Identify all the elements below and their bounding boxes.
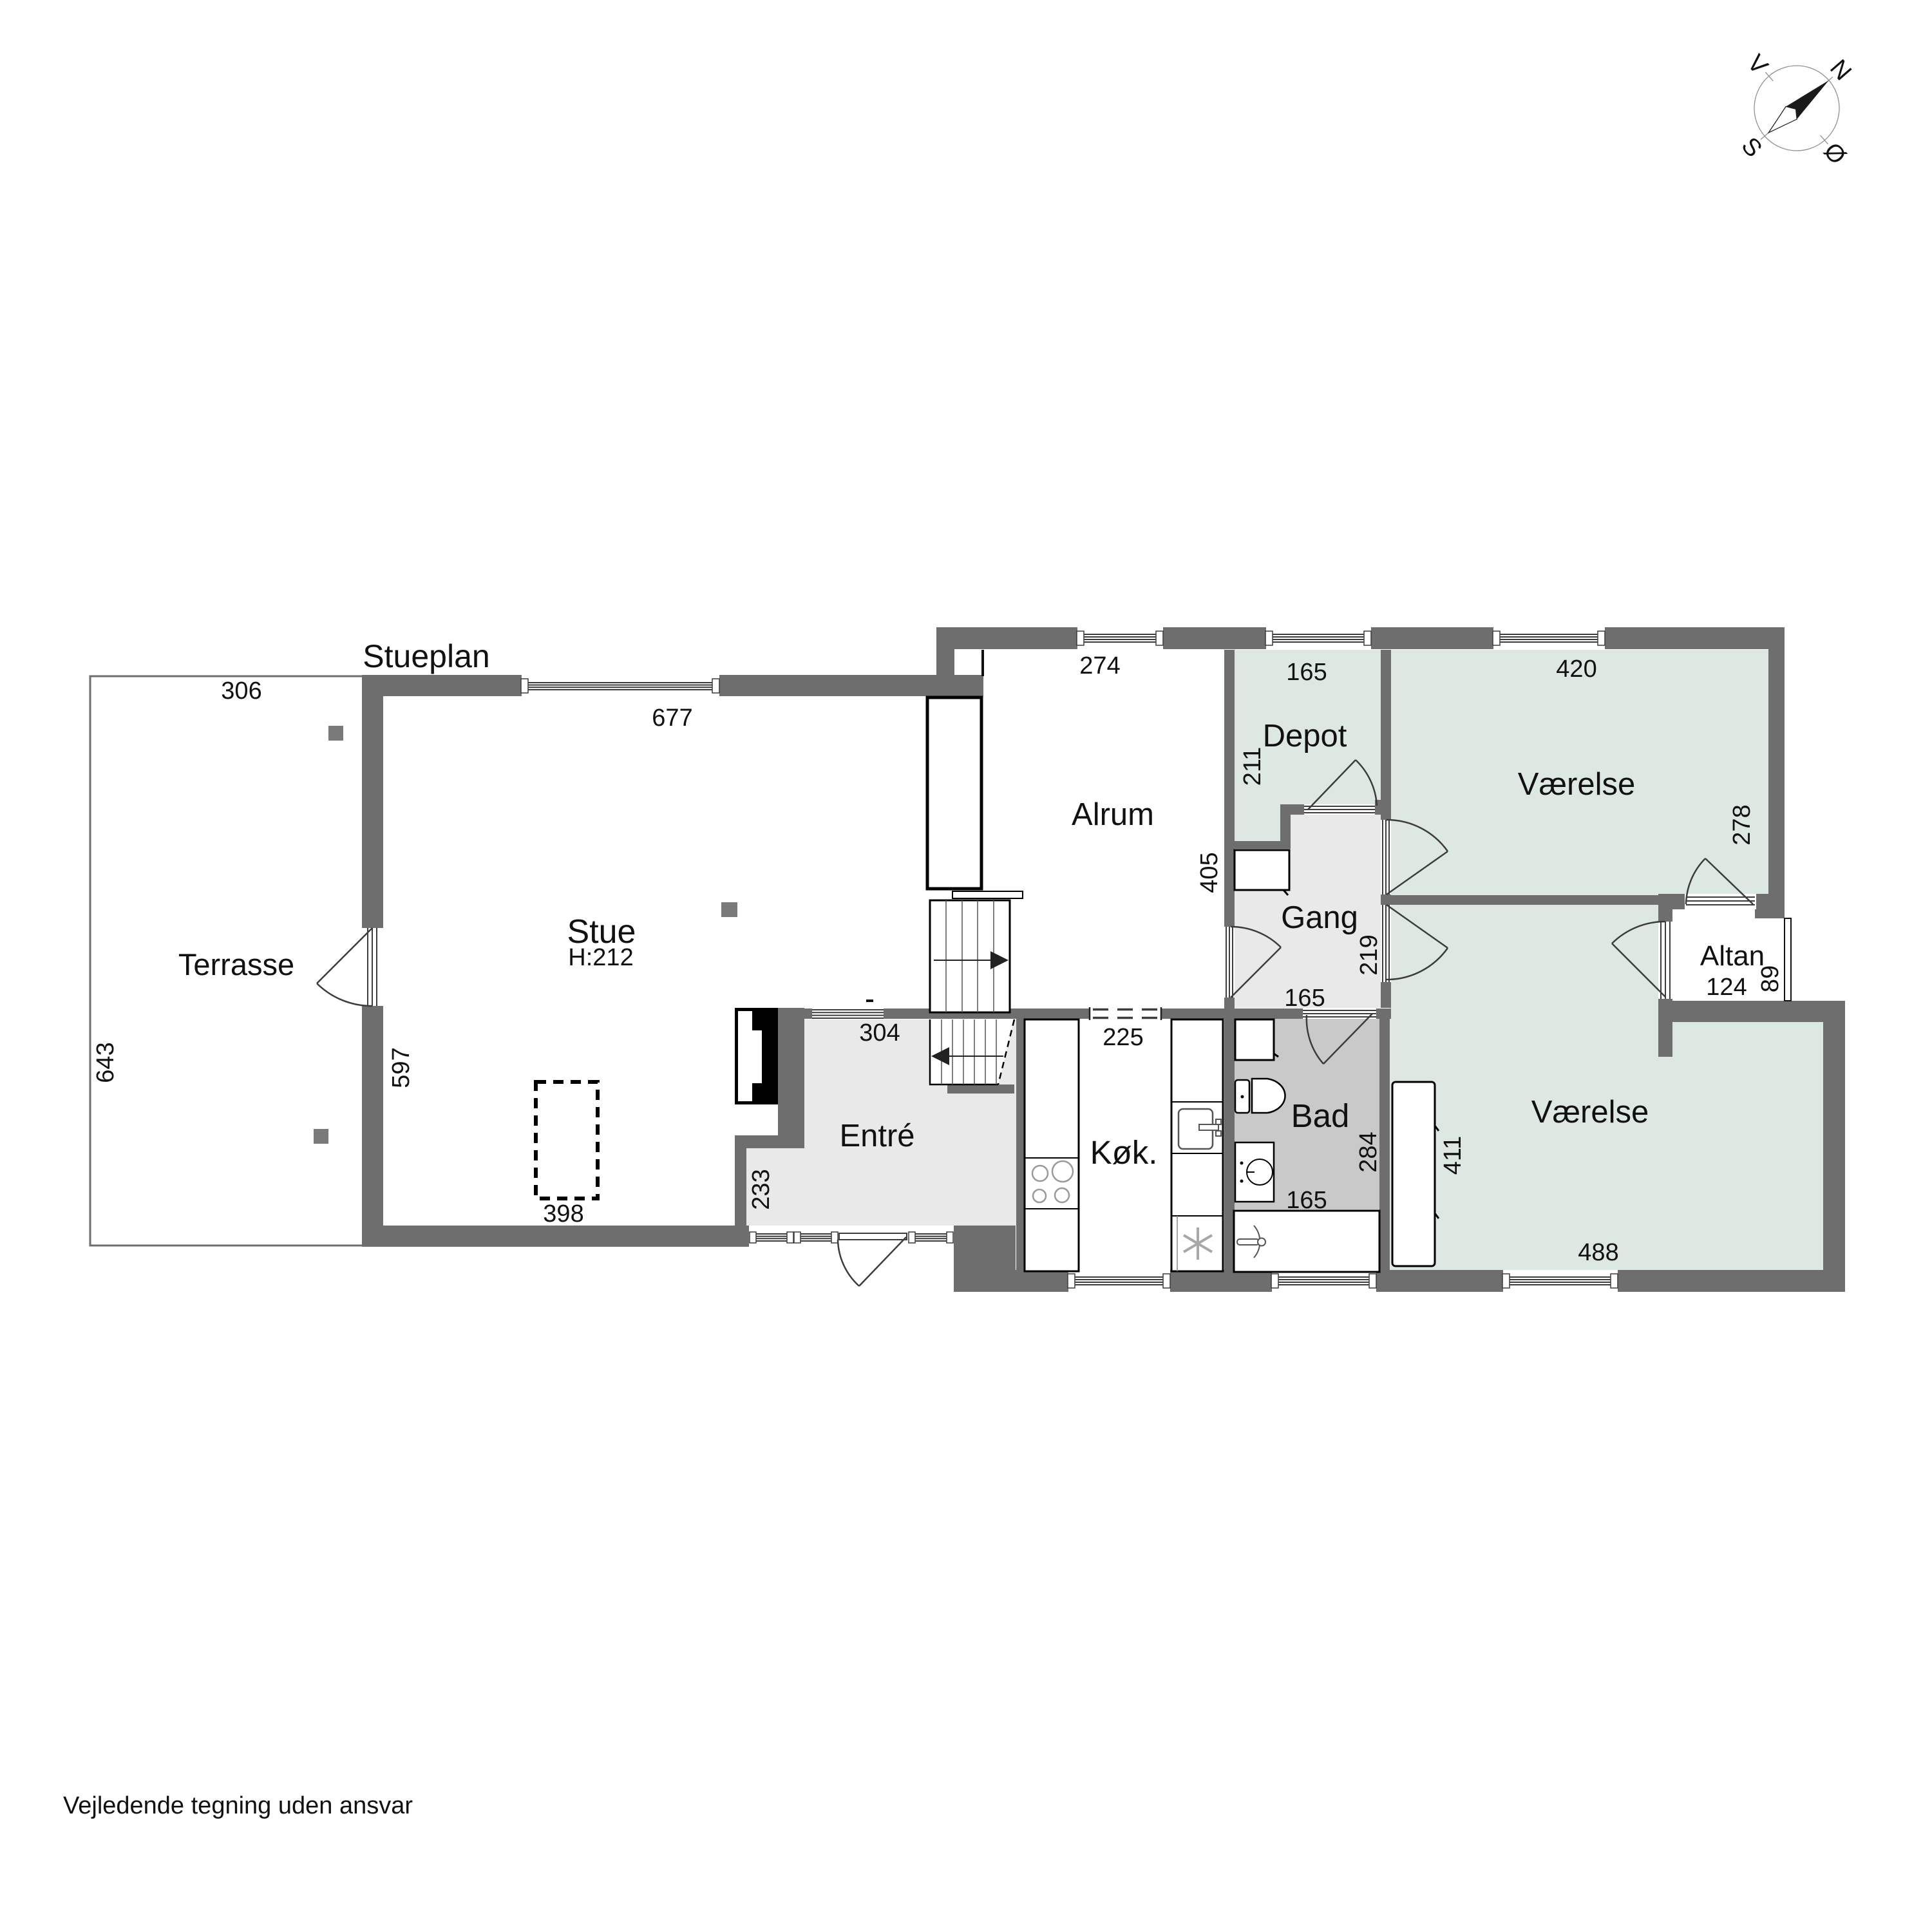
svg-text:Gang: Gang bbox=[1281, 900, 1358, 935]
svg-text:165: 165 bbox=[1286, 1187, 1327, 1214]
svg-text:225: 225 bbox=[1103, 1024, 1143, 1051]
svg-text:H:212: H:212 bbox=[568, 944, 633, 971]
svg-text:398: 398 bbox=[543, 1200, 583, 1227]
svg-text:306: 306 bbox=[221, 677, 261, 705]
svg-text:89: 89 bbox=[1757, 965, 1784, 992]
svg-text:Altan: Altan bbox=[1700, 940, 1765, 972]
svg-text:488: 488 bbox=[1578, 1239, 1618, 1266]
svg-text:165: 165 bbox=[1284, 985, 1325, 1012]
svg-text:124: 124 bbox=[1706, 974, 1747, 1001]
svg-text:Værelse: Værelse bbox=[1518, 767, 1635, 802]
svg-text:597: 597 bbox=[388, 1047, 415, 1088]
svg-text:Depot: Depot bbox=[1263, 719, 1347, 753]
svg-text:643: 643 bbox=[92, 1042, 119, 1083]
svg-text:274: 274 bbox=[1079, 652, 1120, 679]
svg-text:165: 165 bbox=[1286, 659, 1327, 686]
svg-text:278: 278 bbox=[1728, 804, 1756, 845]
svg-text:Terrasse: Terrasse bbox=[178, 947, 294, 981]
svg-text:Bad: Bad bbox=[1291, 1097, 1350, 1134]
svg-text:219: 219 bbox=[1356, 934, 1383, 975]
svg-text:211: 211 bbox=[1239, 747, 1266, 786]
svg-text:405: 405 bbox=[1196, 852, 1223, 893]
svg-text:Stueplan: Stueplan bbox=[363, 638, 489, 674]
svg-text:677: 677 bbox=[652, 705, 692, 732]
svg-text:420: 420 bbox=[1556, 656, 1596, 683]
svg-text:Værelse: Værelse bbox=[1531, 1095, 1649, 1130]
svg-text:233: 233 bbox=[748, 1169, 775, 1209]
svg-text:Vejledende tegning uden ansvar: Vejledende tegning uden ansvar bbox=[63, 1792, 413, 1819]
svg-text:Køk.: Køk. bbox=[1090, 1134, 1158, 1171]
svg-text:Entré: Entré bbox=[839, 1119, 914, 1153]
svg-text:411: 411 bbox=[1439, 1136, 1466, 1175]
svg-text:Alrum: Alrum bbox=[1072, 797, 1154, 832]
svg-text:284: 284 bbox=[1355, 1132, 1382, 1172]
svg-text:304: 304 bbox=[859, 1019, 900, 1046]
